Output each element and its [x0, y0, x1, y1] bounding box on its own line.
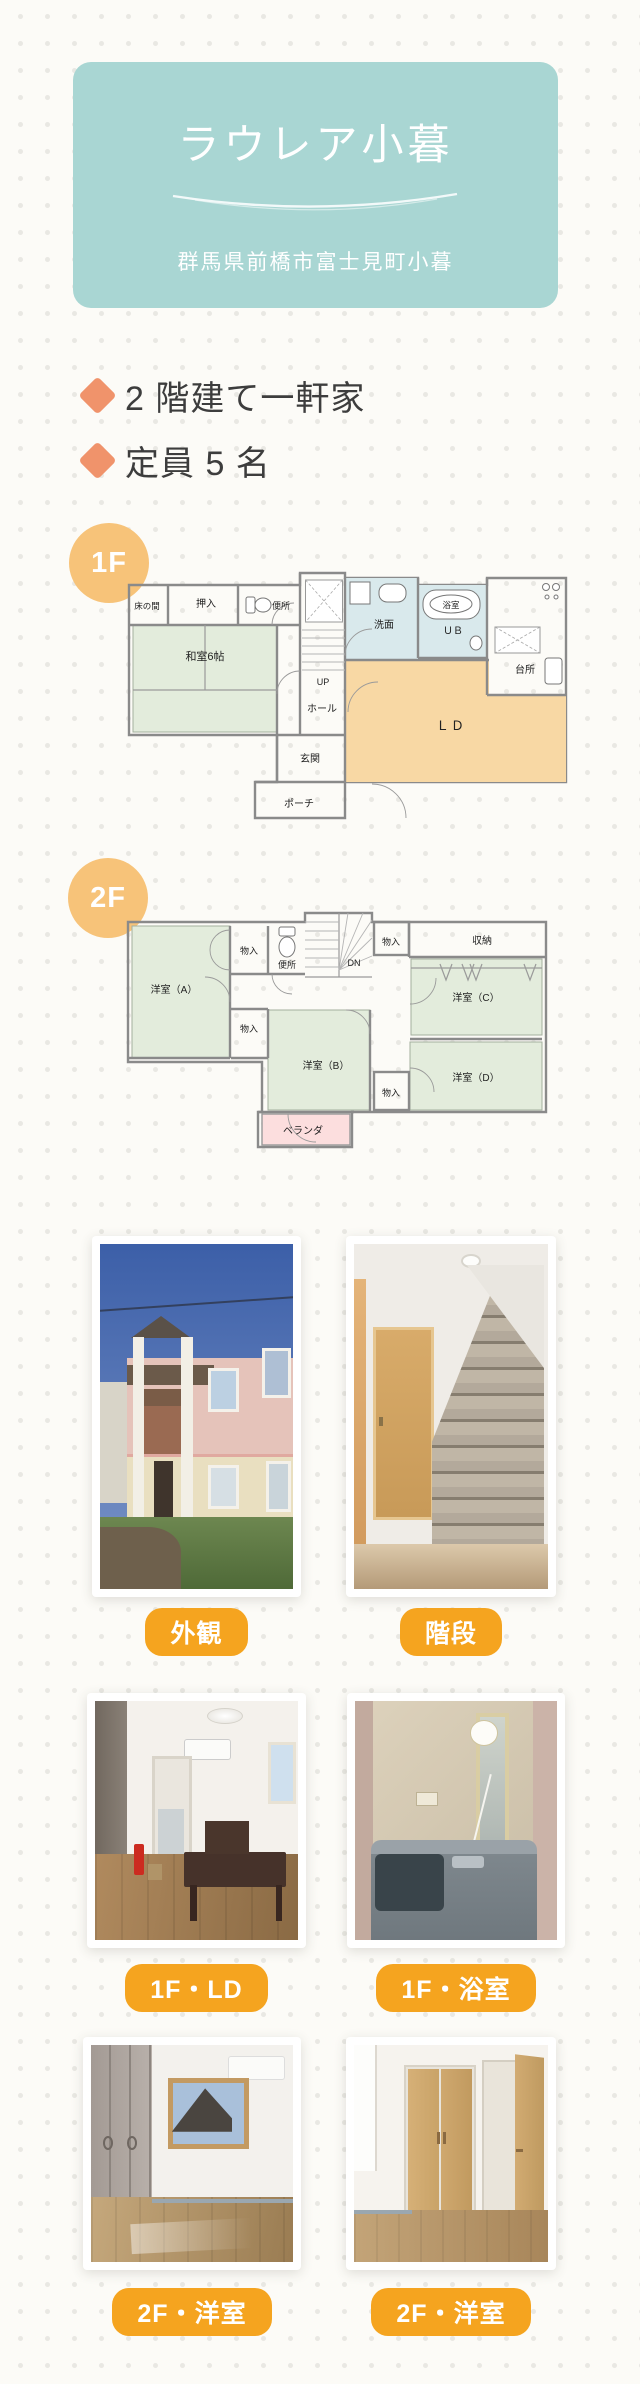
- photo6-closet-handle: [443, 2132, 446, 2144]
- room-label: ＬＤ: [436, 718, 466, 733]
- photo5-air-conditioner: [228, 2056, 285, 2080]
- room-b-fill: [268, 1010, 370, 1110]
- photo-caption-pill: 階段: [400, 1608, 502, 1656]
- feature-item-building: 2 階建て一軒家: [84, 371, 365, 420]
- photo-card-2f-room-b[interactable]: [346, 2037, 556, 2270]
- room-b-photo: [354, 2045, 548, 2262]
- room-label: 物入: [382, 1087, 400, 1098]
- photo3-kitchen-counter: [158, 1809, 184, 1857]
- floorplan-2f: 洋室（A） 物入 便所 DN 物入 収納 洋室（C） 物入 洋室（B） 物入 洋…: [126, 908, 568, 1154]
- photo5-floor-shine: [131, 2218, 254, 2255]
- photo-card-exterior[interactable]: [92, 1236, 301, 1597]
- photo6-door-handle: [516, 2149, 523, 2152]
- caption-stairs: 階段: [346, 1608, 556, 1656]
- caption-2f-room-b: 2F・洋室: [346, 2288, 556, 2336]
- photo6-closet-handle: [437, 2132, 440, 2144]
- photo4-tub-water: [375, 1854, 444, 1911]
- photo2-door-edge: [354, 1279, 366, 1548]
- photo1-window-upper: [208, 1368, 239, 1412]
- photo1-dirt: [100, 1527, 181, 1589]
- photo3-table-leg: [190, 1885, 196, 1921]
- photo1-balcony: [144, 1389, 181, 1406]
- room-label: 物入: [382, 936, 400, 947]
- photo6-window-light: [354, 2045, 377, 2171]
- room-label: 物入: [240, 1023, 258, 1034]
- room-label: 和室6帖: [185, 649, 224, 663]
- photo5-baseboard: [152, 2199, 293, 2203]
- room-label: 浴室: [442, 600, 460, 610]
- caption-1f-ld: 1F・LD: [87, 1964, 306, 2012]
- room-label: 洋室（C）: [452, 991, 499, 1004]
- photo-caption-pill: 1F・LD: [125, 1964, 268, 2012]
- bath-photo: [355, 1701, 557, 1940]
- photo-card-stairs[interactable]: [346, 1236, 556, 1597]
- photo6-closet-door-right: [441, 2069, 472, 2221]
- photo6-wood-floor: [354, 2210, 548, 2262]
- photo1-pillar-right: [181, 1337, 193, 1523]
- photo-card-1f-bath[interactable]: [347, 1693, 565, 1948]
- photo1-entrance-door: [154, 1461, 173, 1523]
- photo4-control-panel: [416, 1792, 438, 1806]
- room-label: ＵＢ: [443, 626, 463, 637]
- fixtures-2f: [279, 927, 295, 957]
- photo3-dining-table: [184, 1852, 286, 1888]
- floor-badge-label: 2F: [90, 882, 126, 915]
- room-label: 収納: [472, 934, 492, 947]
- room-label: 洗面: [374, 619, 394, 631]
- room-label: 押入: [196, 597, 216, 610]
- photo3-chairs: [205, 1821, 250, 1854]
- diamond-bullet-icon: [78, 441, 116, 479]
- photo-card-2f-room-a[interactable]: [83, 2037, 301, 2270]
- photo4-tub-faucet: [452, 1856, 484, 1868]
- stairs-1f: [302, 580, 345, 670]
- room-label: 玄関: [300, 752, 320, 765]
- room-label: 洋室（D）: [452, 1071, 499, 1084]
- photo-caption-pill: 2F・洋室: [371, 2288, 530, 2336]
- floorplan-1f: 床の間 押入 便所 和室6帖 UP ホール 洗面 浴室 ＵＢ 台所 ＬＤ 玄関 …: [126, 570, 568, 822]
- photo1-neighbor-house: [100, 1382, 127, 1503]
- photo3-ceiling-light: [207, 1708, 244, 1724]
- room-a-photo: [91, 2045, 293, 2262]
- photo1-window-lower: [208, 1465, 239, 1509]
- property-address: 群馬県前橋市富士見町小暮: [73, 246, 558, 276]
- photo6-baseboard: [354, 2210, 412, 2214]
- caption-1f-bath: 1F・浴室: [347, 1964, 565, 2012]
- caption-2f-room-a: 2F・洋室: [83, 2288, 301, 2336]
- stairs-2f: [305, 913, 372, 977]
- room-label: 洋室（B）: [303, 1059, 350, 1072]
- title-swoosh-decoration: [165, 190, 465, 216]
- feature-item-capacity: 定員 5 名: [84, 436, 271, 485]
- feature-text: 定員 5 名: [125, 436, 271, 485]
- room-label: UP: [317, 677, 330, 687]
- photo3-fire-extinguisher: [134, 1844, 144, 1875]
- photo3-window: [268, 1742, 296, 1804]
- photo2-door-knob: [379, 1417, 383, 1426]
- floor-badge-label: 1F: [91, 547, 127, 580]
- room-label: ホール: [307, 703, 337, 715]
- photo1-window-lower2: [266, 1461, 291, 1512]
- photo1-pillar-left: [133, 1337, 145, 1523]
- feature-text: 2 階建て一軒家: [125, 371, 365, 420]
- room-label: ベランダ: [283, 1124, 323, 1137]
- stairs-photo: [354, 1244, 548, 1589]
- photo3-box: [148, 1864, 162, 1881]
- diamond-bullet-icon: [78, 376, 116, 414]
- caption-exterior: 外観: [92, 1608, 301, 1656]
- property-header-card: ラウレア小暮 群馬県前橋市富士見町小暮: [73, 62, 558, 308]
- room-label: 台所: [515, 663, 535, 676]
- photo1-window-upper2: [262, 1348, 291, 1399]
- page-title: ラウレア小暮: [73, 124, 558, 166]
- photo2-floor: [354, 1544, 548, 1589]
- room-label: DN: [348, 958, 361, 968]
- exterior-photo: [100, 1244, 293, 1589]
- photo1-gable-roof: [131, 1316, 191, 1338]
- photo-card-1f-ld[interactable]: [87, 1693, 306, 1948]
- room-label: 便所: [272, 600, 290, 611]
- room-label: 洋室（A）: [151, 983, 198, 996]
- photo1-brick-wall: [144, 1406, 181, 1454]
- room-label: 便所: [278, 959, 296, 970]
- photo3-table-leg: [276, 1885, 282, 1921]
- photo6-closet-door-left: [408, 2069, 439, 2221]
- room-label: 物入: [240, 945, 258, 956]
- ld-photo: [95, 1701, 298, 1940]
- photo-caption-pill: 2F・洋室: [112, 2288, 271, 2336]
- photo-caption-pill: 外観: [145, 1608, 247, 1656]
- photo-caption-pill: 1F・浴室: [376, 1964, 535, 2012]
- room-label: ポーチ: [284, 798, 314, 810]
- room-label: 床の間: [134, 601, 160, 611]
